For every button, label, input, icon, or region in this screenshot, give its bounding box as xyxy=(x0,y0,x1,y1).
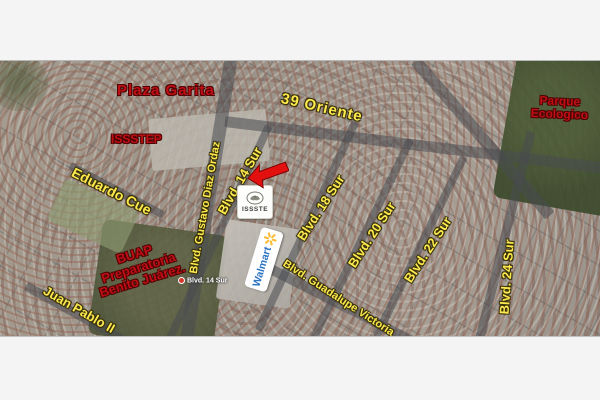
street-label-39-oriente: 39 Oriente xyxy=(279,91,364,125)
street-label-guadalupe-victoria: Blvd. Guadalupe Victoria xyxy=(280,258,397,337)
annotation-parque-ecologico: Parque Ecologico xyxy=(531,94,589,121)
trees-top-left xyxy=(0,60,54,118)
annotation-parque-line2: Ecologico xyxy=(531,107,589,122)
map-label-blvd-14-sur-small: Blvd. 14 Sur xyxy=(178,277,227,285)
page-background: Plaza Garita ISSSTEP Parque Ecologico BU… xyxy=(0,0,600,400)
walmart-spark-icon xyxy=(262,231,278,247)
issste-eagle-icon xyxy=(246,191,264,205)
street-label-blvd-24-sur: Blvd. 24 Sur xyxy=(497,237,516,316)
annotation-issstep: ISSSTEP xyxy=(111,133,162,146)
issste-logo: ISSSTE xyxy=(237,185,273,219)
map-label-blvd-14-sur-small-text: Blvd. 14 Sur xyxy=(187,277,227,284)
issste-logo-text: ISSSTE xyxy=(242,206,268,213)
annotation-plaza-garita: Plaza Garita xyxy=(117,83,215,99)
street-label-blvd-18-sur: Blvd. 18 Sur xyxy=(294,171,348,244)
satellite-map[interactable]: Plaza Garita ISSSTEP Parque Ecologico BU… xyxy=(0,60,600,337)
park-area-ecologico xyxy=(492,60,600,217)
location-arrow-marker-icon xyxy=(247,158,289,189)
map-pin-icon xyxy=(178,277,185,284)
